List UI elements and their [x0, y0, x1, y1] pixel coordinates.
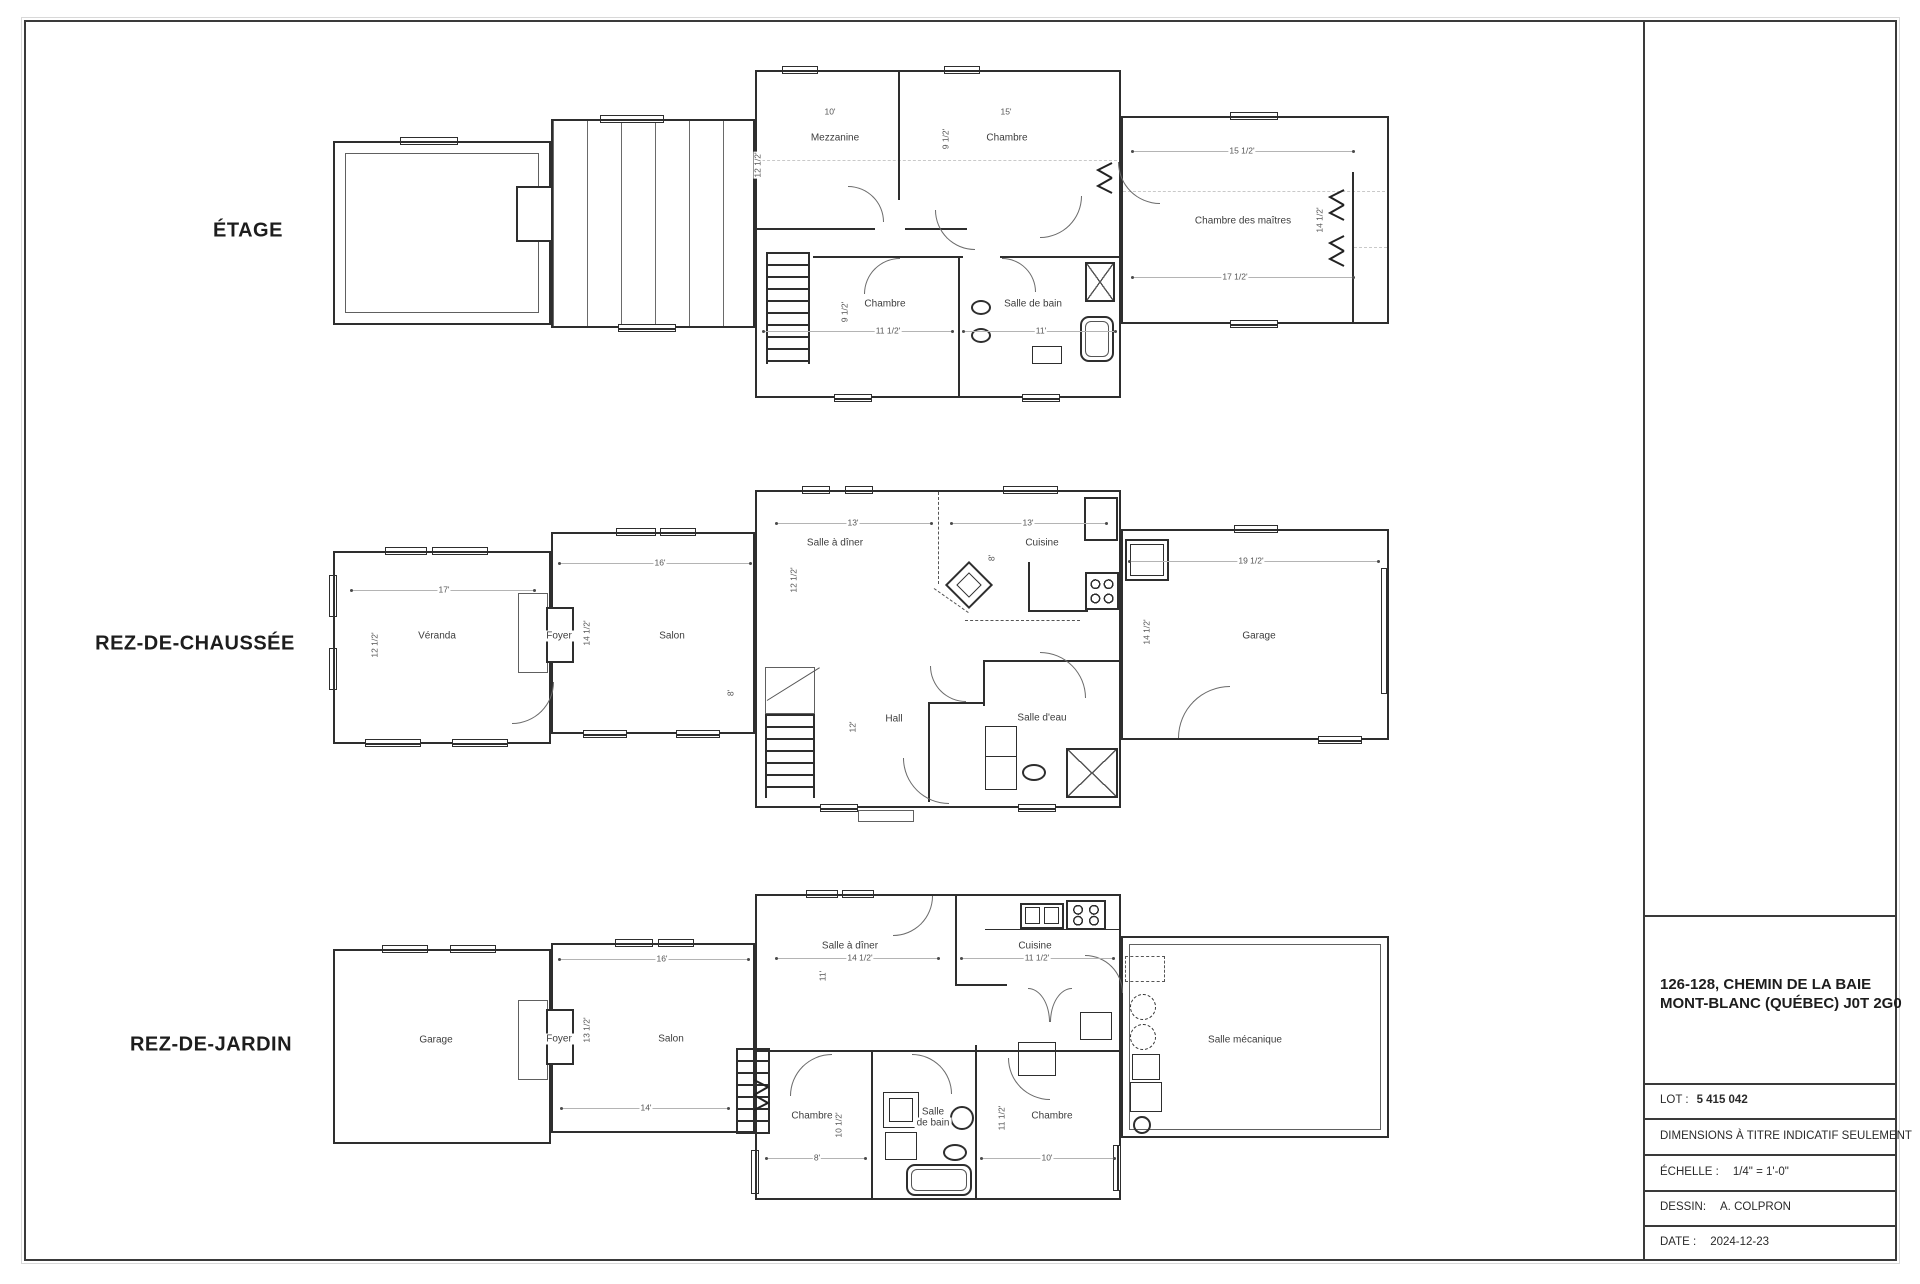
room-label-chambre: Chambre: [862, 299, 907, 310]
mech-equipment: [1130, 1082, 1162, 1112]
window: [1022, 394, 1060, 402]
lot-row: LOT :5 415 042: [1660, 1094, 1748, 1106]
dim-line: [762, 331, 954, 332]
dim-label: 11 1/2': [1024, 954, 1051, 963]
dim-label: 11 1/2': [875, 327, 902, 336]
window: [820, 804, 858, 812]
room-label-foyer: Foyer: [544, 631, 574, 642]
dessin-value: A. COLPRON: [1720, 1201, 1791, 1213]
closet-door-icon: [1094, 160, 1114, 196]
window: [329, 648, 337, 690]
etage-lower-wall: [813, 256, 963, 258]
window: [1234, 525, 1278, 533]
fridge: [1084, 497, 1118, 541]
washer-inner: [889, 1098, 913, 1122]
dim-label: 13': [1021, 519, 1034, 528]
dim-label: 12 1/2': [371, 631, 380, 658]
room-label-salle-de-bain: Salle de bain: [1002, 299, 1064, 310]
window: [806, 890, 838, 898]
window: [400, 137, 458, 145]
floor-label-etage: ÉTAGE: [213, 220, 283, 243]
room-label-foyer: Foyer: [544, 1034, 574, 1045]
window: [782, 66, 818, 74]
dim-line: [558, 959, 750, 960]
closet-door-icon: [1326, 188, 1346, 222]
counter-wall: [1028, 562, 1030, 610]
titleblock-line: [1645, 1154, 1897, 1156]
dim-label: 10': [823, 108, 836, 117]
room-label-chambre: Chambre: [984, 133, 1029, 144]
window: [432, 547, 488, 555]
window: [658, 939, 694, 947]
room-label-salle-a-diner: Salle à dîner: [805, 538, 865, 549]
bathtub: [1080, 316, 1114, 362]
dim-label: 14 1/2': [1143, 618, 1152, 645]
titleblock-line: [1645, 1225, 1897, 1227]
room-label-mezzanine: Mezzanine: [809, 133, 861, 144]
water-tank: [1130, 994, 1156, 1020]
sink-basin: [1044, 907, 1059, 924]
rdc-wall: [928, 702, 985, 704]
sump: [1133, 1116, 1151, 1134]
closet: [1080, 1012, 1112, 1040]
dim-label: 9 1/2': [942, 128, 951, 151]
window: [1113, 1145, 1121, 1191]
room-label-chambre-des-maitres: Chambre des maîtres: [1193, 216, 1293, 227]
dim-label: 14 1/2': [583, 619, 592, 646]
room-label-cuisine: Cuisine: [1023, 538, 1060, 549]
date-row: DATE :2024-12-23: [1660, 1236, 1769, 1248]
dessin-row: DESSIN:A. COLPRON: [1660, 1201, 1791, 1213]
floor-label-rez-de-chaussee: REZ-DE-CHAUSSÉE: [95, 633, 295, 656]
room-label-salon: Salon: [656, 1034, 686, 1045]
dim-label: 17': [437, 586, 450, 595]
rdj-main-outline: [755, 894, 1121, 1200]
scale-label: ÉCHELLE :: [1660, 1166, 1719, 1178]
window: [1230, 320, 1278, 328]
rdj-wall: [955, 984, 1007, 986]
scale-row: ÉCHELLE :1/4" = 1'-0": [1660, 1166, 1789, 1178]
room-label-garage: Garage: [417, 1035, 454, 1046]
room-label-hall: Hall: [883, 714, 904, 725]
rdj-wall: [975, 1045, 977, 1198]
water-tank: [1130, 1024, 1156, 1050]
toilet: [971, 300, 991, 315]
mech-equipment-dashed: [1125, 956, 1165, 982]
dim-label: 15': [999, 108, 1012, 117]
room-label-salon: Salon: [657, 631, 687, 642]
window: [834, 394, 872, 402]
lot-value: 5 415 042: [1697, 1094, 1748, 1106]
etage-closet-wall: [1352, 172, 1354, 324]
etage-bath-wall: [958, 256, 960, 396]
mech-equipment: [1132, 1054, 1160, 1080]
window: [618, 324, 676, 332]
window: [751, 1150, 759, 1194]
room-label-salle-de-bain: Salle: [920, 1107, 946, 1118]
window: [452, 739, 508, 747]
stove: [1066, 900, 1106, 930]
room-label-salle-a-diner: Salle à dîner: [820, 941, 880, 952]
toilet: [1022, 764, 1046, 781]
window: [365, 739, 421, 747]
dim-label: 15 1/2': [1228, 147, 1255, 156]
window: [842, 890, 874, 898]
dim-label: 16': [653, 559, 666, 568]
dim-label: 12 1/2': [790, 566, 799, 593]
drawing-sheet: 126-128, CHEMIN DE LA BAIE MONT-BLANC (Q…: [0, 0, 1920, 1284]
titleblock-line: [1645, 915, 1897, 917]
dim-label: 14': [639, 1104, 652, 1113]
shower: [1066, 748, 1118, 798]
window: [802, 486, 830, 494]
vanity: [1032, 346, 1062, 364]
scale-value: 1/4" = 1'-0": [1733, 1166, 1789, 1178]
dim-label: 11': [1035, 327, 1047, 336]
sink-basin: [1025, 907, 1040, 924]
bathtub: [906, 1164, 972, 1196]
address-line-2: MONT-BLANC (QUÉBEC) J0T 2G0: [1660, 994, 1902, 1013]
window: [944, 66, 980, 74]
dim-label: 11': [819, 970, 828, 982]
window: [329, 575, 337, 617]
dessin-label: DESSIN:: [1660, 1201, 1706, 1213]
stove: [1085, 572, 1119, 610]
window: [676, 730, 720, 738]
window: [382, 945, 428, 953]
titleblock-line: [1645, 1118, 1897, 1120]
dim-label: 8': [988, 554, 997, 562]
dimensions-note: DIMENSIONS À TITRE INDICATIF SEULEMENT: [1660, 1130, 1912, 1142]
dim-label: 11 1/2': [998, 1105, 1007, 1132]
etage-stair: [766, 252, 810, 364]
room-label-chambre: Chambre: [1029, 1111, 1074, 1122]
dim-label: 9 1/2': [841, 301, 850, 324]
closet-door-icon: [752, 1078, 772, 1112]
dim-label: 13': [846, 519, 859, 528]
rdj-wall: [871, 1052, 873, 1198]
entry-step: [858, 810, 914, 822]
floor-label-rez-de-jardin: REZ-DE-JARDIN: [130, 1034, 292, 1057]
shower: [1085, 262, 1115, 302]
window: [600, 115, 664, 123]
window: [660, 528, 696, 536]
ref-line: [757, 160, 1117, 161]
etage-deck: [551, 119, 755, 328]
window: [1018, 804, 1056, 812]
window: [583, 730, 627, 738]
room-label-veranda: Véranda: [416, 631, 458, 642]
dim-label: 8': [727, 689, 736, 697]
bath-sink: [950, 1106, 974, 1130]
address-block: 126-128, CHEMIN DE LA BAIE MONT-BLANC (Q…: [1660, 975, 1902, 1013]
room-label-salle-de-bain: de bain: [915, 1118, 952, 1129]
dim-label: 14 1/2': [1316, 206, 1325, 233]
titleblock-line: [1645, 1083, 1897, 1085]
window: [385, 547, 427, 555]
etage-wall-mezzanine-chambre: [898, 72, 900, 200]
date-label: DATE :: [1660, 1236, 1696, 1248]
titleblock-divider: [1643, 20, 1645, 1261]
dim-label: 13 1/2': [583, 1016, 592, 1043]
window: [1003, 486, 1058, 494]
dryer: [885, 1132, 917, 1160]
dim-label: 12': [849, 720, 858, 733]
etage-lower-wall: [1000, 256, 1121, 258]
rdj-corridor-wall: [757, 1050, 1121, 1052]
closet-door-icon: [1326, 234, 1346, 268]
dim-label: 19 1/2': [1237, 557, 1264, 566]
dim-label: 14 1/2': [846, 954, 873, 963]
room-label-salle-d-eau: Salle d'eau: [1015, 713, 1068, 724]
window: [615, 939, 653, 947]
titleblock-line: [1645, 1190, 1897, 1192]
dim-label: 10': [1040, 1154, 1053, 1163]
window: [450, 945, 496, 953]
counter-wall: [1028, 610, 1088, 612]
garage-storage-inner: [1130, 544, 1164, 576]
room-label-garage: Garage: [1240, 631, 1277, 642]
lot-label: LOT :: [1660, 1094, 1689, 1106]
dim-label: 8': [813, 1154, 821, 1163]
dim-label: 16': [655, 955, 668, 964]
counter-dashed: [938, 492, 939, 584]
date-value: 2024-12-23: [1710, 1236, 1769, 1248]
room-label-cuisine: Cuisine: [1016, 941, 1053, 952]
room-label-salle-mecanique: Salle mécanique: [1206, 1035, 1284, 1046]
bath-cabinet-line: [986, 756, 1016, 757]
window: [845, 486, 873, 494]
rdj-wall: [955, 894, 957, 986]
room-label-chambre: Chambre: [789, 1111, 834, 1122]
rdc-wall: [983, 660, 985, 706]
etage-corridor-wall: [757, 228, 875, 230]
address-line-1: 126-128, CHEMIN DE LA BAIE: [1660, 975, 1902, 994]
etage-left-wing-inner: [345, 153, 539, 313]
etage-dormer-box: [516, 186, 554, 242]
dim-label: 17 1/2': [1221, 273, 1248, 282]
ref-line: [1354, 247, 1387, 248]
window: [1230, 112, 1278, 120]
garage-door: [1381, 568, 1387, 694]
dim-label: 12 1/2': [754, 151, 763, 178]
counter-dashed: [965, 620, 1080, 621]
rdc-stair: [765, 714, 815, 798]
dim-label: 10 1/2': [835, 1111, 844, 1138]
bath-cabinet: [985, 726, 1017, 790]
window: [616, 528, 656, 536]
toilet: [943, 1144, 967, 1161]
window: [1318, 736, 1362, 744]
